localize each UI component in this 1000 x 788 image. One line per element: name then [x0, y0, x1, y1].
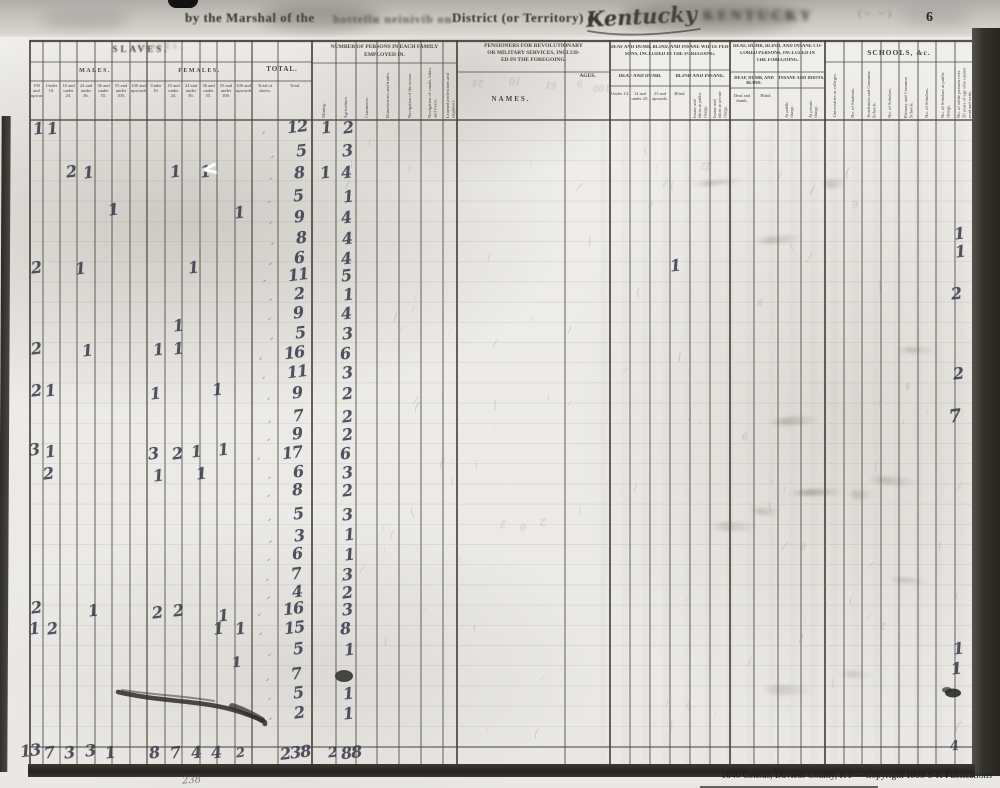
- handwritten-mark: 8: [291, 481, 303, 498]
- header-label-text: Insane and idiots at public charge.: [692, 90, 707, 118]
- publisher-caption: 1840 Census, Daviess County, KY— Copyrig…: [690, 771, 992, 781]
- header-label-text: Agriculture.: [343, 96, 349, 118]
- header-label: 100 and upwards.: [236, 84, 251, 118]
- handwritten-mark: 1: [343, 546, 355, 563]
- handwritten-mark: 6: [292, 463, 304, 480]
- handwritten-mark: 3: [341, 364, 353, 381]
- header-label-text: Academies and Grammar Schools.: [866, 65, 877, 118]
- handwritten-mark: 1: [74, 260, 86, 277]
- header-label-text: Insane and idiots at private charge.: [712, 90, 727, 118]
- header-label-text: No. of Students.: [850, 88, 856, 118]
- bleedthrough-ghost-digit: 10: [509, 75, 520, 84]
- handwritten-mark: 1: [107, 201, 119, 218]
- header-label: 24 and under 36.: [78, 84, 94, 118]
- scan-speckle: (: [381, 524, 386, 533]
- bleedthrough-ghost-digit: 2: [540, 516, 546, 525]
- scan-speckle: (: [686, 699, 691, 712]
- scan-speckle: /: [408, 165, 411, 173]
- header-label: Universities or colleges.: [825, 65, 844, 118]
- handwritten-mark: 2: [341, 482, 353, 499]
- handwritten-mark: 5: [294, 324, 306, 341]
- bleedthrough-ghost-digit: 100: [593, 82, 610, 91]
- handwritten-mark: 17: [281, 444, 303, 462]
- handwritten-mark: 16: [282, 600, 304, 618]
- handwritten-mark: 7: [290, 665, 302, 682]
- handwritten-mark: 1: [152, 341, 164, 358]
- header-label: INSANE AND IDIOTS.: [778, 76, 825, 81]
- handwritten-mark: 1: [190, 443, 202, 460]
- header-label-text: Navigation of canals, lakes, and rivers.: [427, 65, 438, 118]
- bleedthrough-smudge: [760, 685, 814, 696]
- handwritten-mark: 1: [195, 465, 207, 482]
- handwritten-mark: 4: [949, 740, 959, 754]
- handwritten-mark: 1: [44, 382, 56, 399]
- handwritten-mark: 1: [104, 744, 116, 761]
- bleedthrough-ghost-digit: 8: [757, 296, 763, 305]
- scan-speckle: /: [878, 398, 881, 408]
- handwritten-mark: 1: [172, 317, 184, 334]
- handwritten-mark: 6: [339, 445, 351, 462]
- handwritten-mark: 1: [32, 120, 44, 137]
- header-label: Insane and idiots at public charge.: [690, 90, 710, 118]
- handwritten-mark: 2: [235, 747, 245, 761]
- handwritten-mark: 2: [30, 382, 42, 399]
- header-label: No. of Students.: [844, 65, 862, 118]
- header-label: FEMALES.: [147, 68, 252, 74]
- handwritten-mark: 4: [210, 744, 222, 761]
- handwritten-mark: 3: [341, 325, 353, 342]
- handwritten-mark: 3: [147, 445, 159, 462]
- handwritten-mark: 9: [291, 425, 303, 442]
- header-label: 100 and upwards.: [31, 84, 42, 118]
- handwritten-mark: 3: [293, 527, 305, 544]
- handwritten-mark: 2: [341, 426, 353, 443]
- header-label: 55 and under 100.: [113, 84, 129, 118]
- scan-speckle: /: [530, 160, 533, 167]
- bleedthrough-ghost-digit: 2: [880, 620, 886, 629]
- header-label: DEAF AND DUMB.: [610, 74, 670, 79]
- handwritten-mark: 1: [211, 381, 223, 398]
- handwritten-mark: 1: [954, 243, 966, 260]
- handwritten-mark: 4: [340, 305, 352, 322]
- header-label: Under 14.: [611, 92, 629, 118]
- handwritten-mark: 1: [320, 119, 332, 136]
- handwritten-mark: 1: [212, 620, 224, 637]
- handwritten-mark: 1: [342, 188, 354, 205]
- header-label: Blind.: [671, 92, 689, 118]
- handwritten-mark: 1: [149, 385, 161, 402]
- handwritten-mark: 2: [293, 285, 305, 302]
- handwritten-mark: 1: [46, 120, 58, 137]
- header-label: SLAVES.: [110, 43, 210, 52]
- handwritten-mark: 2: [327, 746, 337, 761]
- scan-speckle: (: [670, 182, 675, 195]
- handwritten-mark: 5: [292, 684, 304, 701]
- scan-speckle: /: [666, 699, 669, 707]
- handwritten-mark: 1: [152, 467, 164, 484]
- handwritten-mark: 2: [46, 620, 58, 637]
- scan-speckle: /: [785, 704, 788, 712]
- handwritten-mark: 3: [341, 142, 353, 159]
- header-label: SCHOOLS, &c.: [825, 49, 973, 57]
- handwritten-mark: 1: [343, 526, 355, 543]
- header-label: Mining.: [312, 65, 336, 118]
- census-scan-page: by the Marshal of the hottelln neinivib …: [0, 0, 1000, 788]
- header-label-text: Universities or colleges.: [832, 73, 838, 118]
- bleedthrough-ghost-digit: 2: [500, 518, 506, 527]
- handwritten-mark: 6: [291, 545, 303, 562]
- scan-speckle: /: [486, 726, 489, 734]
- scan-speckle: (: [776, 584, 780, 592]
- header-label: DEAF, DUMB, BLIND, AND INSANE CO-: [730, 44, 825, 49]
- handwritten-mark: 1: [28, 620, 40, 637]
- header-label: At public charge.: [778, 92, 801, 118]
- scan-speckle: (: [547, 394, 550, 402]
- handwritten-mark: 2: [342, 119, 354, 136]
- bleedthrough-ghost-digit: 9: [742, 430, 748, 439]
- scan-speckle: (: [849, 597, 853, 606]
- header-label: SONS, INCLUDED IN THE FOREGOING.: [610, 52, 730, 57]
- header-label: 24 and under 36.: [183, 84, 199, 118]
- header-label: Academies and Grammar Schools.: [862, 65, 881, 118]
- handwritten-mark: 6: [339, 345, 351, 362]
- handwritten-mark: 3: [63, 744, 75, 761]
- header-label-text: No. of Scholars at public charge.: [940, 65, 951, 118]
- handwritten-mark: 1: [669, 257, 681, 274]
- handwritten-mark: 8: [295, 229, 307, 246]
- scan-edge-right: [972, 28, 1000, 776]
- header-label: No. of Scholars.: [918, 65, 936, 118]
- header-label-text: Commerce.: [364, 97, 370, 118]
- handwritten-mark: 1: [233, 204, 245, 221]
- header-label: 36 and under 55.: [201, 84, 216, 118]
- handwritten-mark: 7: [169, 744, 181, 761]
- handwritten-mark: 1: [234, 620, 246, 637]
- handwritten-mark: 1: [187, 259, 199, 276]
- handwritten-mark: 7: [948, 407, 962, 426]
- handwritten-mark: 1: [342, 705, 354, 722]
- header-label: ED IN THE FOREGOING.: [457, 58, 610, 64]
- header-label: Agriculture.: [336, 65, 356, 118]
- scan-speckle: /: [634, 483, 637, 493]
- handwritten-mark: 16: [283, 344, 305, 362]
- header-label-text: Mining.: [321, 103, 327, 118]
- scan-speckle: (: [635, 287, 640, 298]
- header-label: No. of white persons over 20 years of ag…: [955, 65, 973, 118]
- pencil-margin-note: 238: [182, 774, 202, 786]
- scan-artifact-bottom-line: [700, 786, 878, 788]
- handwritten-mark: 7: [292, 407, 304, 424]
- handwritten-mark: 2: [172, 602, 184, 619]
- handwritten-mark: 13: [19, 742, 41, 760]
- header-label: Under 10.: [44, 84, 59, 118]
- scan-speckle: (: [472, 625, 475, 633]
- bleedthrough-ghost-digit: 24: [472, 77, 483, 86]
- handwritten-mark: 2: [30, 259, 42, 276]
- bleedthrough-ghost-digit: 9: [577, 77, 583, 86]
- handwritten-mark: 7: [290, 565, 302, 582]
- scan-speckle: /: [926, 408, 928, 415]
- header-label: THE FOREGOING.: [730, 58, 825, 63]
- header-label: 14 and under 25.: [631, 92, 649, 118]
- header-label-text: Manufactures and trades.: [385, 72, 391, 118]
- handwritten-mark: 2: [42, 465, 54, 482]
- header-label: 100 and upwards.: [131, 84, 146, 118]
- scan-speckle: /: [448, 329, 451, 338]
- header-label: 10 and under 24.: [61, 84, 76, 118]
- handwritten-mark: 1: [950, 660, 962, 677]
- handwritten-mark: 88: [340, 744, 362, 762]
- header-label: Total of slaves.: [253, 84, 277, 118]
- header-label: At private charge.: [801, 92, 825, 118]
- handwritten-mark: 2: [151, 604, 163, 621]
- bleedthrough-ghost-digit: 4: [905, 380, 911, 389]
- header-label: NUMBER OF PERSONS IN EACH FAMILY: [312, 45, 457, 51]
- header-label: No. of Scholars at public charge.: [936, 65, 955, 118]
- handwritten-mark: 1: [231, 656, 241, 671]
- handwritten-mark: 2: [341, 385, 353, 402]
- handwritten-mark: 1: [343, 641, 355, 658]
- header-label: BLIND AND INSANE.: [670, 74, 730, 79]
- handwritten-mark: 1: [81, 342, 93, 359]
- handwritten-mark: 3: [28, 441, 40, 458]
- scan-speckle: /: [393, 312, 397, 323]
- header-label: 55 and under 100.: [218, 84, 234, 118]
- handwritten-mark: 1: [82, 164, 94, 181]
- handwritten-mark: 1: [87, 602, 99, 619]
- header-label: 36 and under 55.: [96, 84, 111, 118]
- handwritten-mark: 1: [952, 640, 964, 657]
- white-correction-mark: <: [201, 159, 219, 180]
- handwritten-mark: 238: [279, 743, 311, 763]
- header-label: Deaf and dumb.: [731, 94, 753, 118]
- handwritten-mark: 1: [217, 441, 229, 458]
- handwritten-mark: 3: [341, 464, 353, 481]
- handwritten-mark: 5: [292, 640, 304, 657]
- header-label: NAMES.: [457, 96, 565, 104]
- handwritten-mark: 1: [172, 340, 184, 357]
- handwritten-mark: 2: [952, 365, 964, 382]
- header-label-text: Learned professions and engineers.: [445, 65, 456, 118]
- header-label: TOTAL.: [252, 66, 312, 74]
- header-label: DEAF AND DUMB, BLIND, AND INSANE WHITE P…: [610, 45, 730, 50]
- header-label: Navigation of canals, lakes, and rivers.: [421, 65, 443, 118]
- header-label: EMPLOYED IN.: [312, 53, 457, 59]
- bleedthrough-ghost-digit: 22: [700, 160, 711, 169]
- handwritten-mark: 9: [293, 208, 305, 225]
- header-label-text: No. of white persons over 20 years of ag…: [956, 65, 973, 118]
- handwritten-mark: 5: [292, 187, 304, 204]
- handwritten-mark: 2: [293, 704, 305, 721]
- header-label-text: Primary and Common Schools.: [903, 65, 914, 118]
- header-label: Learned professions and engineers.: [443, 65, 457, 118]
- header-label-text: No. of Scholars.: [924, 88, 930, 118]
- handwritten-mark: 5: [295, 142, 307, 159]
- header-label: Insane and idiots at private charge.: [710, 90, 730, 118]
- handwritten-mark: 9: [292, 304, 304, 321]
- handwritten-mark: 1: [342, 286, 354, 303]
- handwritten-mark: 4: [341, 230, 353, 247]
- handwritten-mark: 1: [44, 443, 56, 460]
- bleedthrough-smudge: [709, 521, 758, 531]
- handwritten-mark: 2: [341, 408, 353, 425]
- handwritten-mark: 5: [292, 505, 304, 522]
- header-label: Commerce.: [356, 65, 377, 118]
- header-label: Manufactures and trades.: [377, 65, 399, 118]
- header-label-text: Navigation of the ocean.: [407, 73, 413, 118]
- header-label: 10 and under 24.: [166, 84, 181, 118]
- header-label: LORED PERSONS, INCLUDED IN: [730, 51, 825, 56]
- handwritten-mark: 11: [287, 266, 309, 284]
- handwritten-mark: 2: [171, 445, 183, 462]
- scan-speckle: /: [390, 531, 394, 541]
- handwritten-mark: 7: [43, 744, 55, 761]
- bleedthrough-ghost-digit: 6: [800, 540, 806, 549]
- header-label: Total.: [279, 84, 311, 118]
- header-label-text: No. of Scholars.: [887, 88, 893, 118]
- handwritten-mark: 3: [341, 566, 353, 583]
- header-label: DEAF, DUMB, AND BLIND.: [730, 76, 778, 86]
- bleedthrough-ghost-digit: 0: [520, 521, 526, 530]
- handwritten-mark: 1: [319, 164, 331, 181]
- header-label: MALES.: [43, 68, 147, 74]
- handwritten-mark: 9: [291, 384, 303, 401]
- handwritten-mark: 3: [84, 742, 96, 759]
- handwritten-mark: 4: [190, 744, 202, 761]
- handwritten-mark: 11: [286, 363, 308, 381]
- bleedthrough-ghost-digit: 6: [852, 198, 858, 207]
- scan-speckle: /: [440, 391, 444, 401]
- handwritten-mark: 1: [342, 685, 354, 702]
- handwritten-mark: 15: [283, 619, 305, 637]
- handwritten-mark: 3: [341, 506, 353, 523]
- handwritten-mark: 4: [340, 164, 352, 181]
- handwritten-mark: 3: [341, 601, 353, 618]
- scan-speckle: /: [688, 413, 691, 423]
- header-label: Primary and Common Schools.: [899, 65, 918, 118]
- handwritten-mark: 2: [30, 340, 42, 357]
- handwritten-mark: 2: [950, 285, 962, 302]
- header-label: Under 10.: [148, 84, 164, 118]
- handwritten-mark: 2: [65, 163, 77, 180]
- handwritten-mark: 4: [340, 209, 352, 226]
- handwritten-mark: 8: [339, 620, 351, 637]
- header-label-text: At private charge.: [808, 92, 818, 118]
- header-label: Blind.: [755, 94, 777, 118]
- header-label-text: At public charge.: [784, 92, 794, 118]
- header-label: AGES.: [565, 74, 610, 80]
- scan-speckle: (: [874, 461, 879, 472]
- handwritten-mark: 2: [30, 599, 42, 616]
- handwritten-mark: 12: [286, 118, 308, 136]
- header-label: No. of Scholars.: [881, 65, 899, 118]
- header-label: Navigation of the ocean.: [399, 65, 421, 118]
- handwritten-mark: 8: [148, 744, 160, 761]
- header-label: 25 and upwards.: [651, 92, 669, 118]
- handwritten-mark: 1: [953, 225, 965, 242]
- handwritten-mark: 5: [340, 267, 352, 284]
- bleedthrough-ghost-digit: 61: [545, 79, 556, 88]
- handwritten-mark: 1: [169, 163, 181, 180]
- handwritten-mark: 8: [293, 164, 305, 181]
